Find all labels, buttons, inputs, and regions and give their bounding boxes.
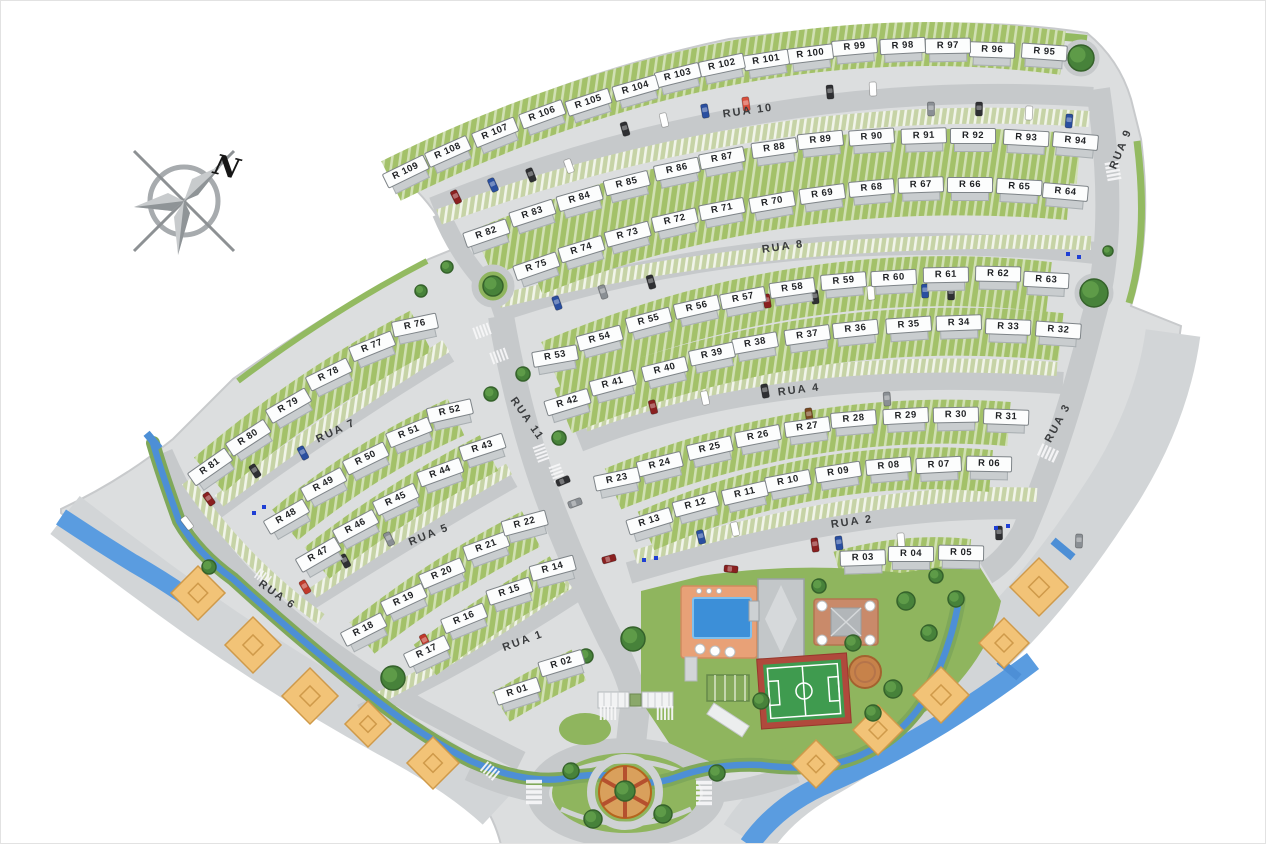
lot-R-99: R 99 — [831, 37, 879, 67]
lot-R-71: R 71 — [698, 197, 748, 231]
lot-label: R 63 — [1023, 271, 1070, 289]
lot-R-60: R 60 — [870, 269, 917, 297]
lot-R-58: R 58 — [768, 277, 817, 309]
lot-R-68: R 68 — [848, 178, 896, 208]
lot-R-13: R 13 — [625, 507, 677, 545]
lot-R-56: R 56 — [673, 294, 724, 330]
lot-R-02: R 02 — [537, 649, 589, 687]
lot-label: R 60 — [870, 269, 917, 287]
lot-label: R 04 — [888, 546, 934, 562]
lot-R-84: R 84 — [555, 184, 606, 222]
lot-R-106: R 106 — [518, 99, 570, 139]
lot-R-77: R 77 — [348, 330, 400, 371]
lot-R-16: R 16 — [440, 602, 492, 643]
lot-R-06: R 06 — [966, 456, 1012, 483]
lot-R-24: R 24 — [636, 451, 687, 487]
lot-R-48: R 48 — [263, 498, 316, 544]
lot-building — [951, 192, 989, 201]
lot-R-03: R 03 — [840, 549, 887, 577]
street-label-rua-2: RUA 2 — [830, 513, 874, 531]
lot-R-88: R 88 — [750, 137, 799, 169]
lot-R-79: R 79 — [265, 387, 318, 433]
lot-label: R 31 — [983, 408, 1030, 426]
street-label-rua-9: RUA 9 — [1107, 127, 1134, 171]
lot-R-34: R 34 — [936, 314, 983, 342]
lot-R-57: R 57 — [719, 286, 769, 320]
lot-label: R 93 — [1003, 129, 1050, 147]
lot-label: R 98 — [879, 37, 926, 55]
lot-R-07: R 07 — [915, 456, 962, 484]
lot-R-87: R 87 — [698, 146, 748, 180]
lot-R-28: R 28 — [830, 409, 878, 439]
lot-R-108: R 108 — [424, 135, 477, 177]
lot-R-05: R 05 — [938, 545, 984, 572]
lot-R-73: R 73 — [603, 220, 654, 257]
lot-R-70: R 70 — [748, 190, 798, 224]
lot-R-62: R 62 — [975, 266, 1021, 293]
lot-R-39: R 39 — [688, 342, 738, 377]
lot-label: R 61 — [923, 267, 969, 284]
lot-R-90: R 90 — [848, 127, 896, 156]
lot-R-10: R 10 — [764, 469, 814, 503]
street-label-rua-5: RUA 5 — [407, 521, 451, 548]
street-label-rua-3: RUA 3 — [1043, 401, 1074, 444]
lot-R-65: R 65 — [995, 178, 1042, 206]
lot-R-33: R 33 — [985, 318, 1032, 346]
masterplan-map: N R 01R 02R 03R 04R 05R 06R 07R 08R 09R … — [0, 0, 1266, 844]
lot-R-102: R 102 — [698, 53, 748, 88]
lot-R-104: R 104 — [611, 74, 662, 112]
street-label-rua-6: RUA 6 — [256, 578, 298, 612]
lot-R-72: R 72 — [651, 207, 702, 243]
lot-R-08: R 08 — [865, 456, 913, 486]
lot-R-09: R 09 — [814, 461, 864, 494]
lot-label: R 35 — [885, 315, 932, 334]
lot-R-04: R 04 — [888, 546, 934, 572]
lot-R-67: R 67 — [898, 176, 945, 204]
lot-R-29: R 29 — [882, 407, 929, 435]
lot-label: R 33 — [985, 318, 1032, 336]
lot-R-64: R 64 — [1041, 182, 1089, 212]
lot-building — [892, 561, 930, 570]
lot-label: R 91 — [901, 127, 948, 145]
lot-R-31: R 31 — [983, 408, 1030, 436]
lot-R-76: R 76 — [391, 313, 441, 348]
lot-R-82: R 82 — [462, 218, 514, 258]
lot-R-96: R 96 — [969, 41, 1016, 69]
lot-R-22: R 22 — [500, 509, 551, 546]
lot-label: R 90 — [848, 127, 895, 146]
lot-R-38: R 38 — [731, 331, 781, 365]
lot-label: R 03 — [840, 549, 887, 567]
lot-R-69: R 69 — [798, 183, 847, 215]
lot-R-53: R 53 — [531, 344, 581, 378]
lot-label: R 34 — [936, 314, 983, 332]
lot-R-15: R 15 — [485, 577, 537, 616]
lot-R-75: R 75 — [512, 251, 564, 291]
lot-R-61: R 61 — [923, 267, 969, 294]
lot-R-83: R 83 — [508, 199, 560, 238]
lot-R-97: R 97 — [925, 38, 971, 65]
lot-R-35: R 35 — [885, 315, 933, 344]
lot-R-92: R 92 — [950, 128, 996, 154]
street-label-rua-1: RUA 1 — [501, 628, 545, 654]
lot-R-40: R 40 — [641, 356, 692, 392]
lot-R-20: R 20 — [418, 557, 471, 599]
lot-R-54: R 54 — [575, 324, 626, 361]
lot-R-41: R 41 — [588, 369, 639, 406]
lot-label: R 32 — [1035, 320, 1082, 339]
lot-R-52: R 52 — [426, 398, 477, 434]
lot-R-44: R 44 — [416, 457, 468, 497]
lot-R-74: R 74 — [557, 235, 609, 273]
lot-R-100: R 100 — [787, 43, 836, 74]
lot-R-107: R 107 — [471, 116, 523, 157]
lot-R-45: R 45 — [372, 482, 425, 525]
lot-R-95: R 95 — [1020, 42, 1068, 71]
lot-label: R 67 — [898, 176, 945, 194]
lot-R-86: R 86 — [653, 157, 703, 192]
lot-R-37: R 37 — [783, 324, 832, 356]
lot-label: R 95 — [1021, 42, 1068, 61]
lot-R-85: R 85 — [603, 170, 654, 206]
lot-R-93: R 93 — [1002, 129, 1049, 157]
lot-label: R 97 — [925, 38, 971, 55]
lot-R-43: R 43 — [458, 433, 510, 472]
lot-label: R 30 — [933, 407, 979, 424]
lot-label: R 07 — [915, 456, 962, 474]
lot-R-91: R 91 — [901, 127, 948, 155]
lot-R-23: R 23 — [593, 467, 643, 502]
lot-R-12: R 12 — [671, 490, 722, 527]
lot-R-18: R 18 — [340, 612, 393, 656]
lot-R-103: R 103 — [654, 62, 705, 98]
street-label-rua-4: RUA 4 — [777, 381, 821, 398]
street-label-rua-8: RUA 8 — [761, 238, 805, 256]
lot-label: R 62 — [975, 266, 1021, 283]
lot-R-78: R 78 — [305, 357, 358, 401]
lot-building — [954, 143, 992, 152]
lot-R-105: R 105 — [564, 88, 616, 127]
lot-R-94: R 94 — [1051, 131, 1099, 161]
lot-R-49: R 49 — [300, 467, 353, 512]
lot-R-63: R 63 — [1022, 271, 1069, 299]
lot-label: R 66 — [947, 177, 993, 193]
lot-label: R 96 — [969, 41, 1016, 59]
lot-R-30: R 30 — [933, 407, 979, 434]
lot-R-26: R 26 — [734, 424, 784, 458]
lot-R-42: R 42 — [543, 388, 595, 426]
lot-R-55: R 55 — [624, 306, 675, 343]
lot-R-17: R 17 — [403, 634, 456, 677]
lot-R-11: R 11 — [721, 480, 772, 516]
lot-R-101: R 101 — [742, 49, 792, 82]
lot-R-109: R 109 — [382, 154, 435, 198]
lot-R-32: R 32 — [1034, 320, 1082, 349]
street-label-rua-7: RUA 7 — [314, 417, 358, 446]
lot-R-14: R 14 — [528, 554, 579, 591]
lot-label: R 92 — [950, 128, 996, 144]
lot-R-50: R 50 — [342, 441, 395, 485]
lot-R-66: R 66 — [947, 177, 993, 203]
lot-R-89: R 89 — [797, 130, 845, 161]
lot-R-27: R 27 — [783, 416, 832, 448]
street-label-rua-10: RUA 10 — [722, 102, 774, 121]
lot-R-98: R 98 — [879, 37, 926, 65]
lot-label: R 65 — [996, 178, 1043, 196]
lot-label: R 29 — [882, 407, 929, 425]
lot-R-01: R 01 — [493, 677, 545, 716]
lot-R-59: R 59 — [820, 271, 868, 301]
lot-R-36: R 36 — [832, 319, 880, 350]
lot-label: R 06 — [966, 456, 1012, 473]
street-label-rua-11: RUA 11 — [508, 395, 547, 443]
lot-R-25: R 25 — [686, 435, 737, 471]
labels-layer: R 01R 02R 03R 04R 05R 06R 07R 08R 09R 10… — [1, 1, 1265, 843]
lot-label: R 05 — [938, 545, 984, 562]
